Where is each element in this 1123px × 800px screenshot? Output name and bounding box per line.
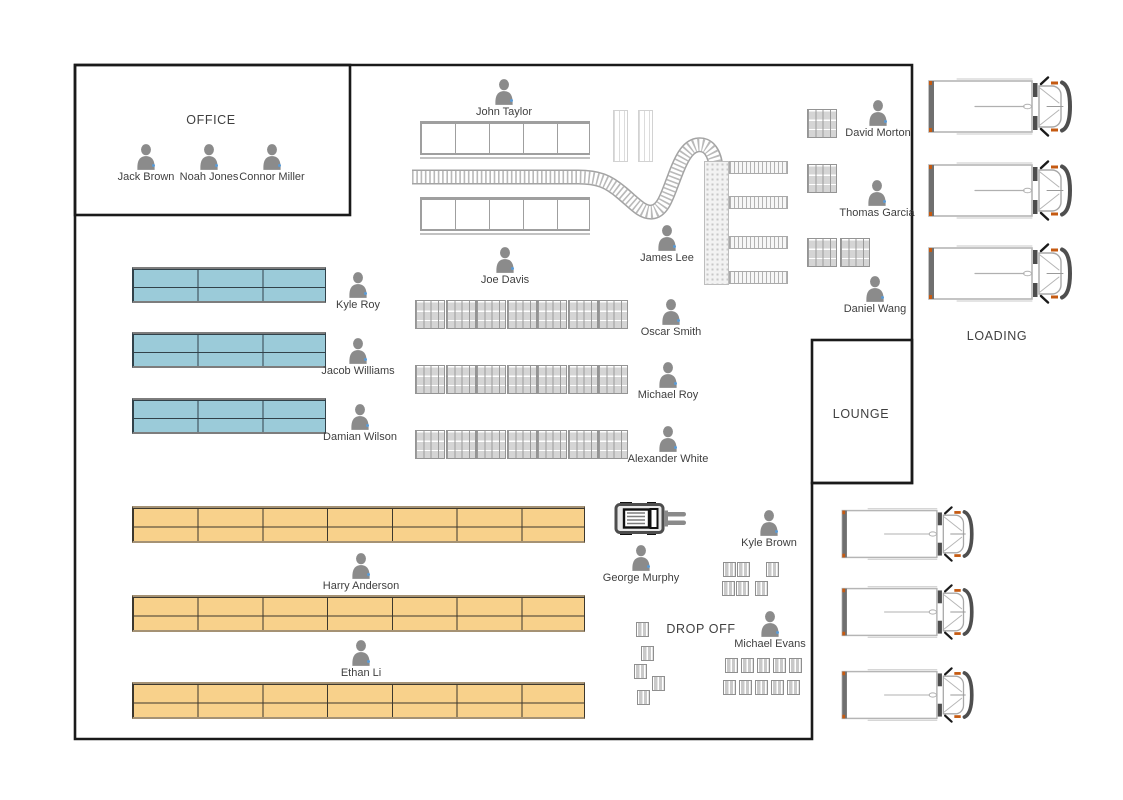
person[interactable]: Kyle Roy <box>347 272 369 314</box>
storage-rack[interactable] <box>132 398 326 434</box>
truck-icon <box>927 243 1073 304</box>
forklift-icon <box>614 502 687 535</box>
rack-shelf-line <box>420 233 590 235</box>
presence-dot <box>510 99 513 102</box>
presence-dot <box>152 164 155 167</box>
package-box[interactable] <box>637 690 650 705</box>
storage-rack[interactable] <box>132 682 585 719</box>
floor-plan-canvas: OFFICE LOUNGE LOADING DROP OFF Jack Brow… <box>0 0 1123 800</box>
person-name: David Morton <box>845 127 910 139</box>
pallet[interactable] <box>507 365 537 394</box>
presence-dot <box>776 631 779 634</box>
truck-icon <box>835 667 980 723</box>
conveyor-lane[interactable] <box>729 161 788 174</box>
storage-rack[interactable] <box>420 197 590 231</box>
person-name: Damian Wilson <box>323 431 397 443</box>
forklift[interactable] <box>614 502 687 540</box>
package-box[interactable] <box>652 676 665 691</box>
presence-dot <box>673 245 676 248</box>
person-name: Joe Davis <box>481 274 529 286</box>
person[interactable]: Jack Brown <box>135 144 157 186</box>
person[interactable]: Damian Wilson <box>349 404 371 446</box>
person-name: Alexander White <box>628 453 709 465</box>
person-name: Noah Jones <box>180 171 239 183</box>
drop-off-label: DROP OFF <box>631 622 771 636</box>
package-box[interactable] <box>636 622 649 637</box>
presence-dot <box>364 292 367 295</box>
package-box[interactable] <box>736 581 749 596</box>
conveyor-lane[interactable] <box>729 271 788 284</box>
pallet[interactable] <box>415 430 445 459</box>
person[interactable]: Harry Anderson <box>350 553 372 595</box>
package-box[interactable] <box>722 581 735 596</box>
pallet[interactable] <box>598 300 628 329</box>
storage-rack[interactable] <box>420 121 590 155</box>
person[interactable]: Joe Davis <box>494 247 516 289</box>
pallet[interactable] <box>807 164 837 193</box>
package-box[interactable] <box>741 658 754 673</box>
package-box[interactable] <box>737 562 750 577</box>
pallet[interactable] <box>476 365 506 394</box>
person-name: Jacob Williams <box>321 365 394 377</box>
person[interactable]: James Lee <box>656 225 678 267</box>
truck[interactable] <box>835 584 980 645</box>
person[interactable]: Ethan Li <box>350 640 372 682</box>
package-box[interactable] <box>755 581 768 596</box>
pallet[interactable] <box>537 430 567 459</box>
presence-dot <box>674 446 677 449</box>
pallet[interactable] <box>568 365 598 394</box>
person-name: Harry Anderson <box>323 580 399 592</box>
pallet[interactable] <box>807 238 837 267</box>
person-name: Michael Roy <box>638 389 699 401</box>
package-box[interactable] <box>789 658 802 673</box>
slim-rack[interactable] <box>613 110 628 162</box>
conveyor-lane[interactable] <box>729 196 788 209</box>
package-box[interactable] <box>766 562 779 577</box>
pallet[interactable] <box>537 300 567 329</box>
presence-dot <box>674 382 677 385</box>
pallet[interactable] <box>507 430 537 459</box>
presence-dot <box>884 120 887 123</box>
truck[interactable] <box>927 243 1073 309</box>
package-box[interactable] <box>757 658 770 673</box>
presence-dot <box>647 565 650 568</box>
package-box[interactable] <box>723 562 736 577</box>
package-box[interactable] <box>739 680 752 695</box>
pallet[interactable] <box>568 430 598 459</box>
package-box[interactable] <box>641 646 654 661</box>
slim-rack[interactable] <box>638 110 653 162</box>
presence-dot <box>215 164 218 167</box>
pallet[interactable] <box>415 300 445 329</box>
person-name: James Lee <box>640 252 694 264</box>
storage-rack[interactable] <box>132 595 585 632</box>
truck[interactable] <box>927 160 1073 226</box>
person-name: Kyle Brown <box>741 537 797 549</box>
office-room[interactable] <box>75 65 350 215</box>
pallet[interactable] <box>807 109 837 138</box>
person[interactable]: Daniel Wang <box>864 276 886 318</box>
pallet[interactable] <box>476 300 506 329</box>
pallet[interactable] <box>598 365 628 394</box>
truck-icon <box>835 584 980 640</box>
person[interactable]: Alexander White <box>657 426 679 468</box>
person-name: Thomas Garcia <box>839 207 914 219</box>
office-label: OFFICE <box>141 113 281 127</box>
pallet[interactable] <box>537 365 567 394</box>
presence-dot <box>775 530 778 533</box>
person-name: Kyle Roy <box>336 299 380 311</box>
person[interactable]: Kyle Brown <box>758 510 780 552</box>
person[interactable]: Michael Evans <box>759 611 781 653</box>
pallet[interactable] <box>507 300 537 329</box>
person-name: Oscar Smith <box>641 326 702 338</box>
presence-dot <box>881 296 884 299</box>
person[interactable]: Jacob Williams <box>347 338 369 380</box>
package-box[interactable] <box>634 664 647 679</box>
person[interactable]: Michael Roy <box>657 362 679 404</box>
pallet[interactable] <box>840 238 870 267</box>
truck[interactable] <box>927 76 1073 142</box>
lounge-label: LOUNGE <box>791 407 931 421</box>
presence-dot <box>278 164 281 167</box>
pallet[interactable] <box>568 300 598 329</box>
presence-dot <box>511 267 514 270</box>
presence-dot <box>677 319 680 322</box>
truck-icon <box>927 160 1073 221</box>
person-name: John Taylor <box>476 106 532 118</box>
presence-dot <box>367 573 370 576</box>
presence-dot <box>366 424 369 427</box>
person[interactable]: Noah Jones <box>198 144 220 186</box>
person[interactable]: Thomas Garcia <box>866 180 888 222</box>
presence-dot <box>883 200 886 203</box>
person[interactable]: George Murphy <box>630 545 652 587</box>
presence-dot <box>364 358 367 361</box>
loading-label: LOADING <box>927 329 1067 343</box>
package-box[interactable] <box>723 680 736 695</box>
person-name: Jack Brown <box>118 171 175 183</box>
person-name: Connor Miller <box>239 171 304 183</box>
person[interactable]: Oscar Smith <box>660 299 682 341</box>
rack-shelf-line <box>420 157 590 159</box>
person-name: Daniel Wang <box>844 303 907 315</box>
person-name: Michael Evans <box>734 638 806 650</box>
presence-dot <box>367 660 370 663</box>
person[interactable]: David Morton <box>867 100 889 142</box>
person[interactable]: John Taylor <box>493 79 515 121</box>
pallet[interactable] <box>446 430 476 459</box>
truck[interactable] <box>835 506 980 567</box>
conveyor-lane[interactable] <box>729 236 788 249</box>
pallet[interactable] <box>415 365 445 394</box>
person-name: Ethan Li <box>341 667 381 679</box>
package-box[interactable] <box>773 658 786 673</box>
roller-conveyor-column[interactable] <box>704 161 729 285</box>
storage-rack[interactable] <box>132 332 326 368</box>
pallet[interactable] <box>446 300 476 329</box>
storage-rack[interactable] <box>132 506 585 543</box>
person[interactable]: Connor Miller <box>261 144 283 186</box>
package-box[interactable] <box>771 680 784 695</box>
pallet[interactable] <box>476 430 506 459</box>
package-box[interactable] <box>725 658 738 673</box>
person-name: George Murphy <box>603 572 679 584</box>
package-box[interactable] <box>755 680 768 695</box>
truck-icon <box>927 76 1073 137</box>
storage-rack[interactable] <box>132 267 326 303</box>
truck[interactable] <box>835 667 980 728</box>
pallet[interactable] <box>598 430 628 459</box>
package-box[interactable] <box>787 680 800 695</box>
truck-icon <box>835 506 980 562</box>
pallet[interactable] <box>446 365 476 394</box>
